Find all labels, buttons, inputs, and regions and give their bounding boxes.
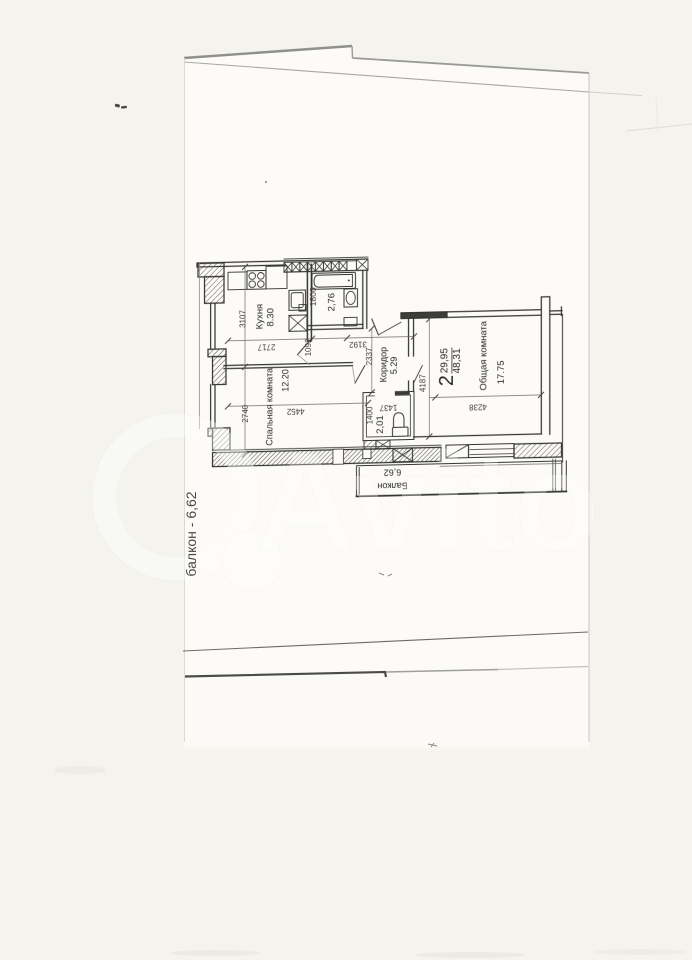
- svg-text:12.20: 12.20: [281, 369, 291, 392]
- svg-text:1437: 1437: [379, 403, 397, 412]
- svg-text:29,95: 29,95: [440, 348, 451, 374]
- svg-text:Avito: Avito: [255, 423, 600, 580]
- svg-text:2740: 2740: [241, 404, 250, 423]
- svg-text:2717: 2717: [257, 342, 275, 351]
- svg-text:Общая комната: Общая комната: [479, 320, 490, 391]
- svg-text:балкон - 6,62: балкон - 6,62: [183, 491, 199, 576]
- svg-text:4238: 4238: [469, 402, 487, 411]
- svg-text:3107: 3107: [239, 309, 248, 328]
- svg-text:1400: 1400: [366, 406, 375, 425]
- svg-text:1092: 1092: [304, 338, 313, 357]
- svg-text:4452: 4452: [286, 407, 304, 416]
- svg-text:48,31: 48,31: [452, 348, 463, 374]
- svg-text:3192: 3192: [349, 340, 367, 349]
- svg-text:Коридор: Коридор: [378, 347, 388, 383]
- svg-text:17.75: 17.75: [496, 360, 507, 384]
- svg-text:1800: 1800: [308, 287, 318, 306]
- svg-text:8.30: 8.30: [266, 308, 277, 327]
- svg-text:Кухня: Кухня: [255, 304, 266, 330]
- svg-text:2: 2: [436, 375, 458, 387]
- svg-text:4187: 4187: [419, 374, 428, 393]
- svg-text:2337: 2337: [365, 347, 374, 366]
- svg-text:2,76: 2,76: [327, 293, 338, 312]
- svg-text:5.29: 5.29: [389, 357, 399, 375]
